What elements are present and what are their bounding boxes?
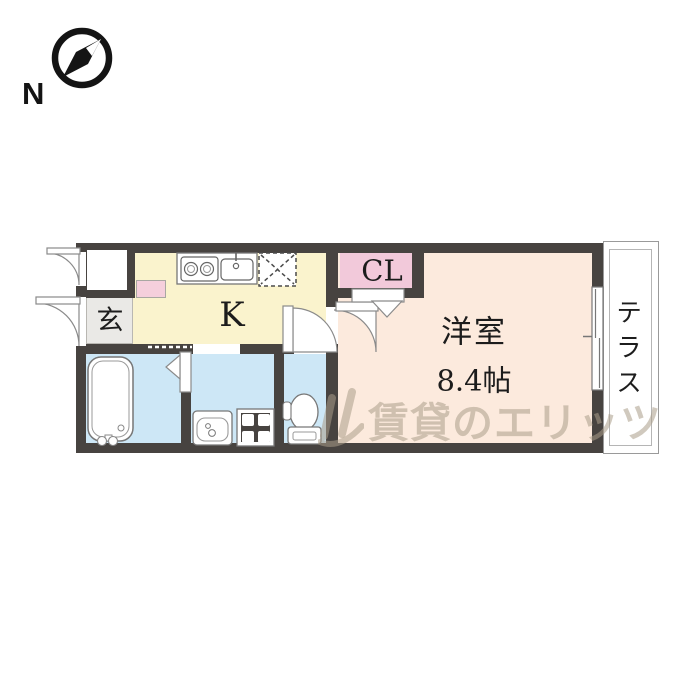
kitchen-label: K — [219, 298, 244, 332]
toilet-bowl-icon — [283, 394, 321, 444]
bath-folding-door — [166, 352, 191, 392]
washbasin-icon — [193, 411, 232, 445]
sliding-window-icon — [583, 287, 603, 390]
washing-machine-pan-icon — [237, 409, 274, 446]
compass-north-label: N — [22, 76, 44, 112]
main-room-door-swing — [334, 302, 378, 352]
plan-vector-layer — [0, 0, 700, 700]
compass-north-icon — [55, 31, 109, 85]
entrance-door-swing — [36, 297, 80, 346]
main-room-label-block: 洋室 8.4帖 — [436, 307, 511, 400]
main-room-size: 8.4帖 — [436, 358, 511, 400]
floor-plan-page: N 玄 K CL 洋室 8.4帖 テラス 賃貸のエリッツ — [0, 0, 700, 700]
refrigerator-space-icon — [259, 253, 296, 286]
gas-stove-icon — [181, 257, 218, 281]
kitchen-counter — [177, 253, 257, 284]
closet-label: CL — [361, 257, 402, 286]
genkan-label: 玄 — [97, 308, 124, 335]
terrace-label: テラス — [609, 299, 646, 404]
main-room-label: 洋室 — [436, 307, 511, 352]
bathtub-icon — [88, 357, 133, 446]
